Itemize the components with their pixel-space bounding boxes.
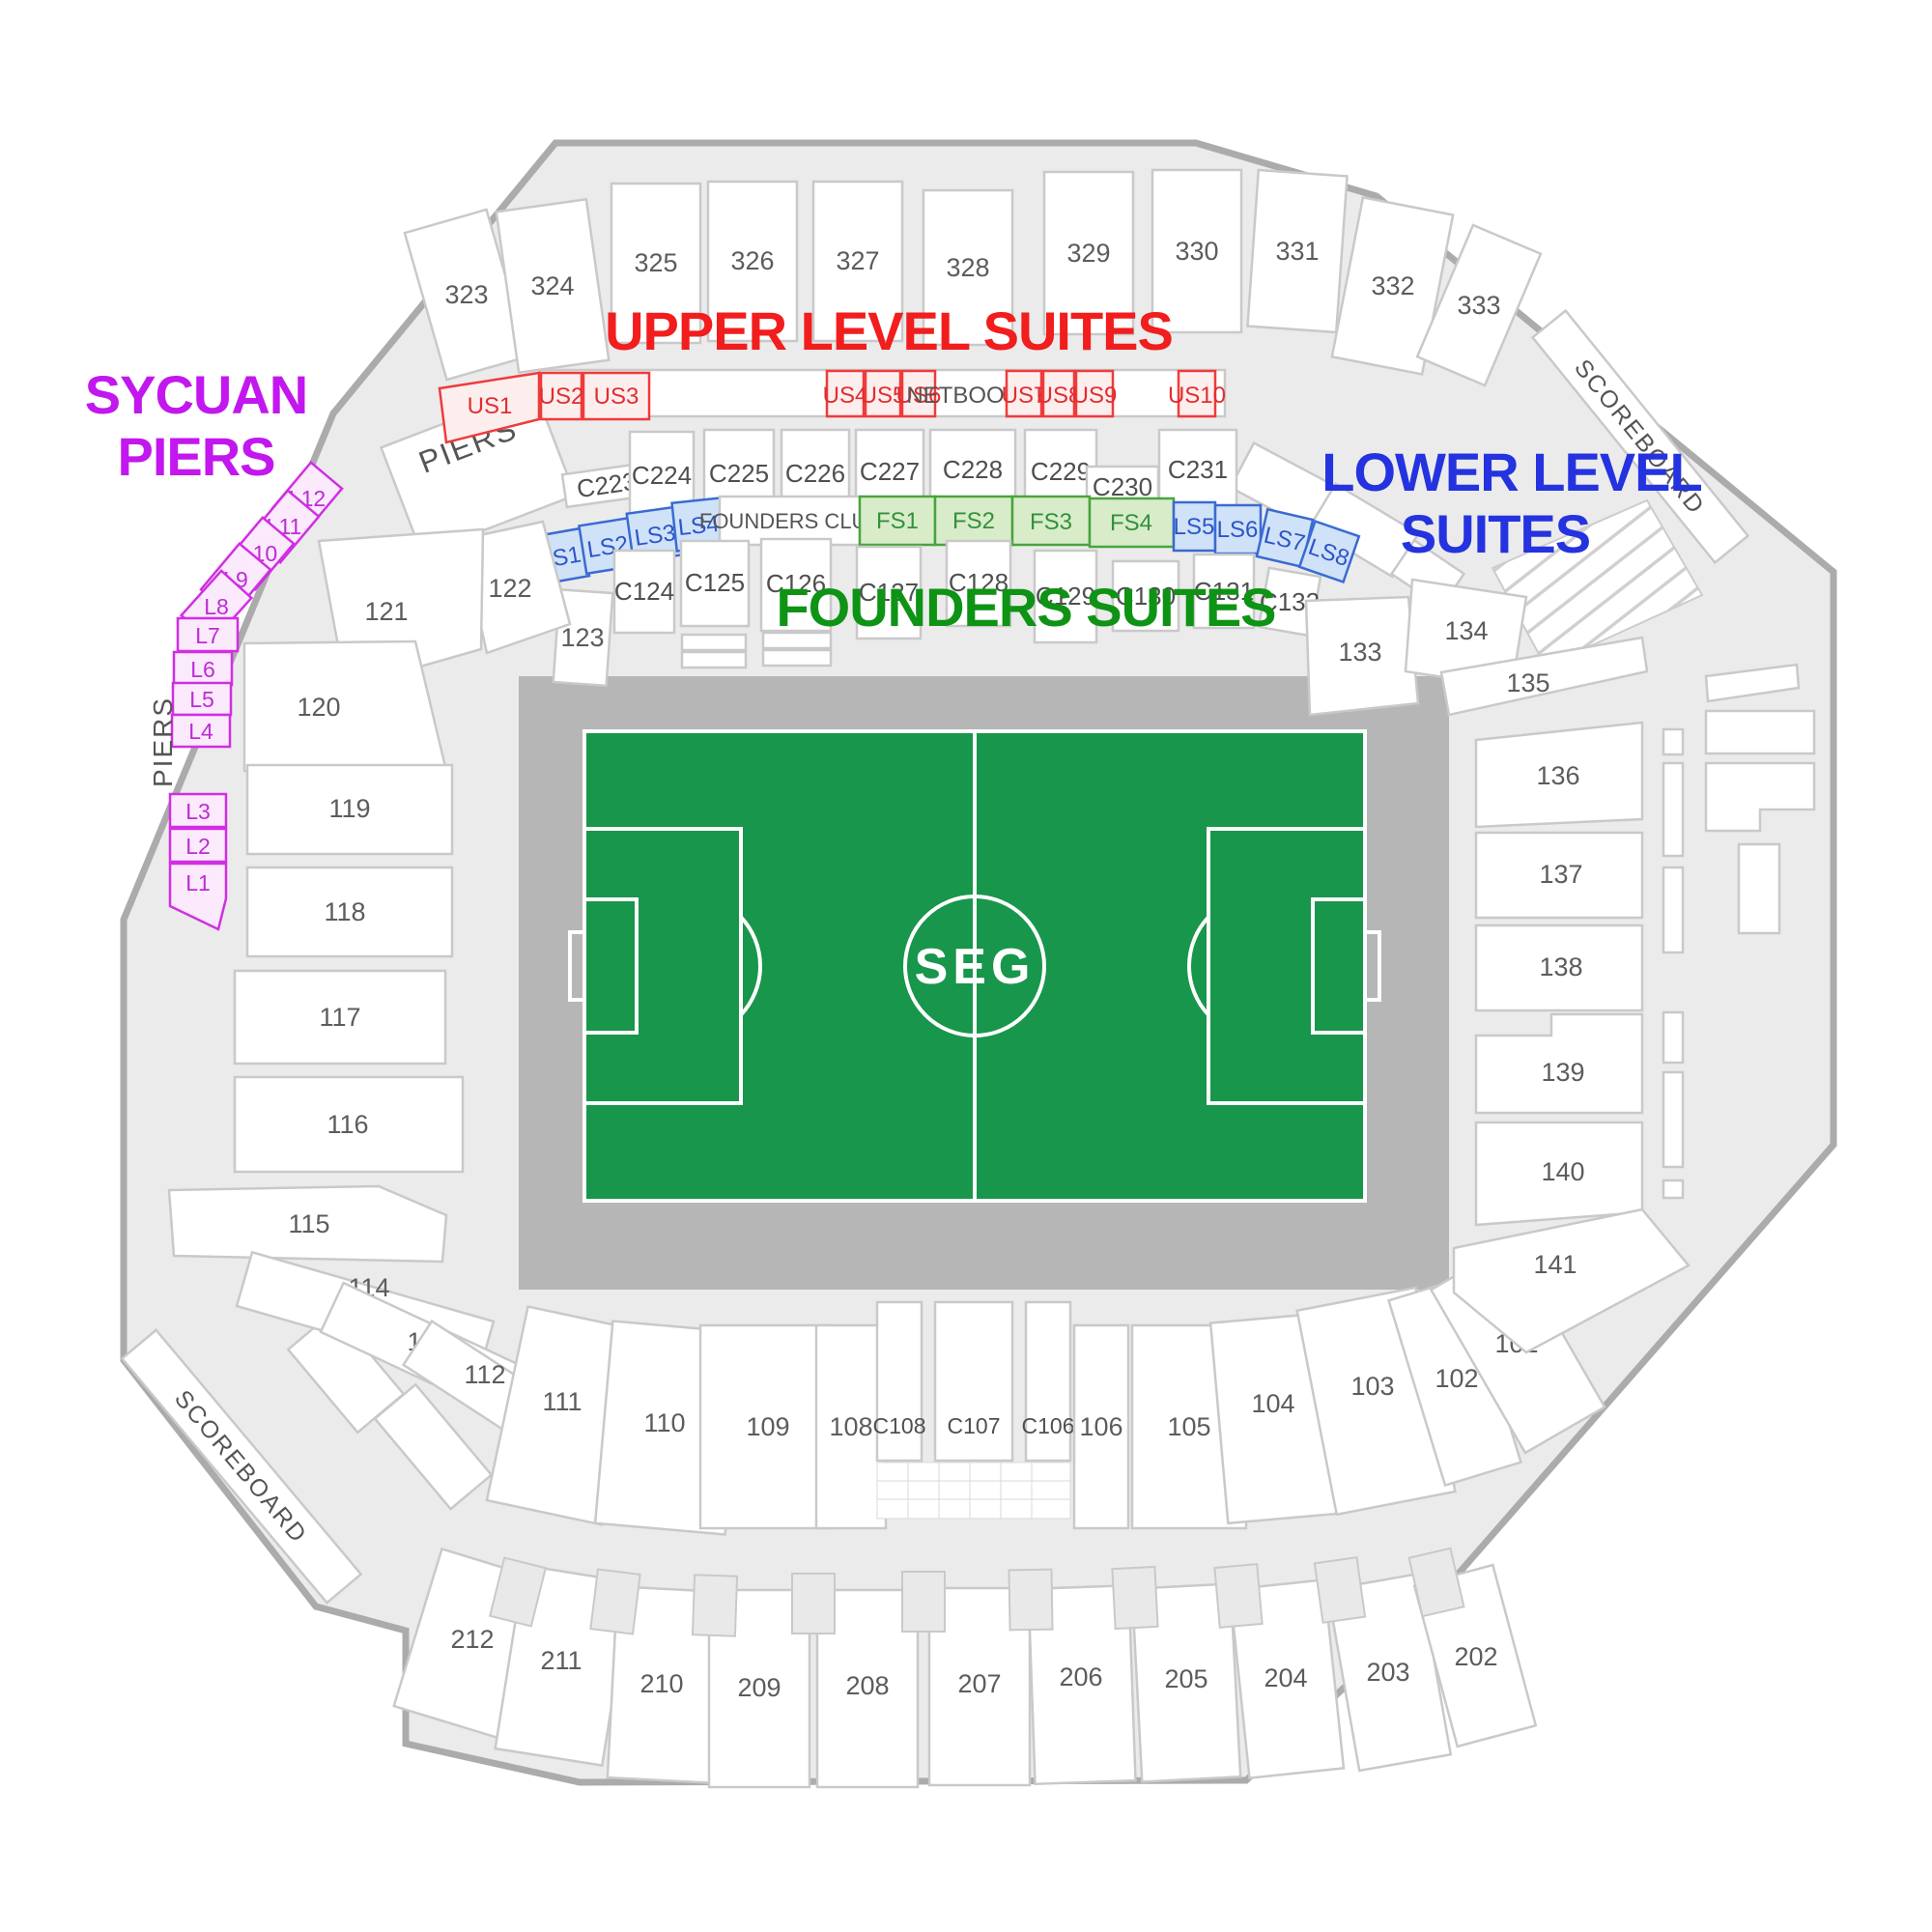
founders-club-label: FOUNDERS CLUB: [699, 509, 881, 533]
section-123-label: 123: [560, 623, 604, 652]
section-c231-label: C231: [1168, 455, 1228, 484]
title-upper-level-suites: UPPER LEVEL SUITES: [605, 300, 1173, 361]
vomitory-tab: [1214, 1564, 1262, 1628]
section-205-label: 205: [1164, 1664, 1207, 1693]
section-c224-label: C224: [632, 461, 692, 490]
section-329-label: 329: [1066, 239, 1110, 268]
section-326-label: 326: [730, 246, 774, 275]
section-136-label: 136: [1536, 761, 1579, 790]
section-c124-label: C124: [614, 577, 674, 606]
section-110-label: 110: [643, 1408, 685, 1437]
vomitory-tab: [1009, 1570, 1052, 1631]
aisle-strip-1: [1663, 729, 1683, 754]
section-105-label: 105: [1167, 1412, 1210, 1441]
suite-us1-label: US1: [468, 393, 513, 419]
aisle-strip-4: [1663, 1012, 1683, 1063]
section-332-label: 332: [1371, 271, 1414, 300]
section-112-label: 112: [464, 1360, 505, 1389]
section-120-label: 120: [297, 693, 340, 722]
section-c125-label: C125: [685, 568, 745, 597]
field-logo: SEG: [915, 939, 1036, 995]
section-333-label: 333: [1457, 291, 1500, 320]
aisle-strip-3: [1663, 867, 1683, 952]
section-109-label: 109: [746, 1412, 789, 1441]
suite-us2-label: US2: [539, 384, 584, 410]
vomitory-tab: [693, 1575, 737, 1635]
section-c107-label: C107: [948, 1413, 1001, 1438]
section-115-label: 115: [288, 1209, 329, 1238]
section-120[interactable]: [244, 641, 446, 771]
suite-fs3-label: FS3: [1030, 509, 1072, 535]
section-138-label: 138: [1539, 952, 1582, 981]
section-140-label: 140: [1541, 1157, 1584, 1186]
section-117-label: 117: [319, 1003, 360, 1032]
structure-e-box1: [1706, 711, 1814, 753]
aisle-strip-5: [1663, 1072, 1683, 1167]
section-137-label: 137: [1539, 860, 1582, 889]
section-111-label: 111: [542, 1387, 582, 1416]
title-lower-level-line2: SUITES: [1401, 503, 1590, 564]
vomitory-tab: [1112, 1567, 1157, 1629]
suite-l3-label: L3: [185, 799, 211, 824]
section-207-label: 207: [957, 1669, 1001, 1698]
section-324-label: 324: [530, 271, 574, 300]
section-134-label: 134: [1444, 616, 1488, 645]
vomitory-tab: [902, 1572, 945, 1632]
club-box-1: [682, 635, 746, 650]
suite-us10-label: US10: [1168, 383, 1226, 409]
suite-l1-label: L1: [185, 870, 211, 895]
section-325-label: 325: [634, 248, 677, 277]
section-133-label: 133: [1338, 638, 1381, 667]
section-103-label: 103: [1350, 1372, 1394, 1401]
structure-e-box3: [1739, 844, 1779, 933]
suite-l7-label: L7: [195, 623, 220, 648]
camera-grid: [877, 1463, 1070, 1519]
section-118-label: 118: [324, 897, 365, 926]
section-c228-label: C228: [943, 455, 1003, 484]
suite-fs1-label: FS1: [876, 508, 919, 534]
stadium-seat-map: SCOREBOARD SCOREBOARD SEG 323 324 325 32…: [0, 0, 1932, 1932]
vomitory-tab: [1315, 1557, 1365, 1623]
title-founders-suites: FOUNDERS SUITES: [776, 577, 1275, 638]
suite-l8-label: L8: [204, 594, 229, 619]
section-141-label: 141: [1533, 1250, 1577, 1279]
section-204-label: 204: [1264, 1663, 1307, 1692]
title-sycuan-line1: SYCUAN: [85, 364, 307, 425]
section-119-label: 119: [328, 794, 370, 823]
title-lower-level-line1: LOWER LEVEL: [1321, 441, 1701, 502]
section-331-label: 331: [1275, 237, 1319, 266]
section-208-label: 208: [845, 1671, 889, 1700]
aisle-strip-2: [1663, 763, 1683, 856]
section-c226-label: C226: [785, 459, 845, 488]
section-211-label: 211: [540, 1646, 582, 1675]
suite-l5-label: L5: [189, 687, 214, 712]
section-327-label: 327: [836, 246, 879, 275]
section-139-label: 139: [1541, 1058, 1584, 1087]
section-328-label: 328: [946, 253, 989, 282]
suite-l6-label: L6: [190, 657, 215, 682]
section-202-label: 202: [1454, 1642, 1497, 1671]
title-sycuan-line2: PIERS: [117, 426, 274, 487]
section-330-label: 330: [1175, 237, 1218, 266]
section-212-label: 212: [450, 1625, 494, 1654]
suite-l2-label: L2: [185, 834, 211, 859]
club-box-2: [682, 652, 746, 668]
section-102-label: 102: [1435, 1364, 1478, 1393]
suite-ls5-label: LS5: [1174, 514, 1215, 540]
suite-fs2-label: FS2: [952, 508, 995, 534]
section-209-label: 209: [737, 1673, 781, 1702]
section-c106-label: C106: [1022, 1413, 1075, 1438]
section-c225-label: C225: [709, 459, 769, 488]
section-210-label: 210: [639, 1669, 683, 1698]
section-106-label: 106: [1079, 1412, 1122, 1441]
aisle-strip-6: [1663, 1180, 1683, 1198]
section-108-label: 108: [829, 1412, 872, 1441]
suite-us3-label: US3: [594, 384, 639, 410]
suite-fs4-label: FS4: [1110, 510, 1152, 536]
section-121-label: 121: [364, 597, 408, 626]
section-206-label: 206: [1059, 1662, 1102, 1691]
suite-l4-label: L4: [188, 719, 213, 744]
section-135-label: 135: [1506, 668, 1549, 697]
club-box-4: [763, 650, 831, 666]
section-c108-label: C108: [873, 1413, 926, 1438]
section-116-label: 116: [327, 1110, 368, 1139]
suite-us9-label: US9: [1072, 383, 1118, 409]
suite-ls6-label: LS6: [1217, 517, 1259, 543]
vomitory-tab: [590, 1570, 639, 1634]
section-203-label: 203: [1366, 1658, 1409, 1687]
section-c230-label: C230: [1093, 472, 1152, 501]
section-122-label: 122: [488, 574, 531, 603]
section-c229-label: C229: [1031, 457, 1091, 486]
piers-west-label: PIERS: [148, 696, 178, 787]
section-104-label: 104: [1251, 1389, 1294, 1418]
vomitory-tab: [792, 1574, 835, 1634]
section-c227-label: C227: [860, 457, 920, 486]
seat-map-svg: SCOREBOARD SCOREBOARD SEG 323 324 325 32…: [0, 0, 1932, 1932]
section-323-label: 323: [444, 280, 488, 309]
